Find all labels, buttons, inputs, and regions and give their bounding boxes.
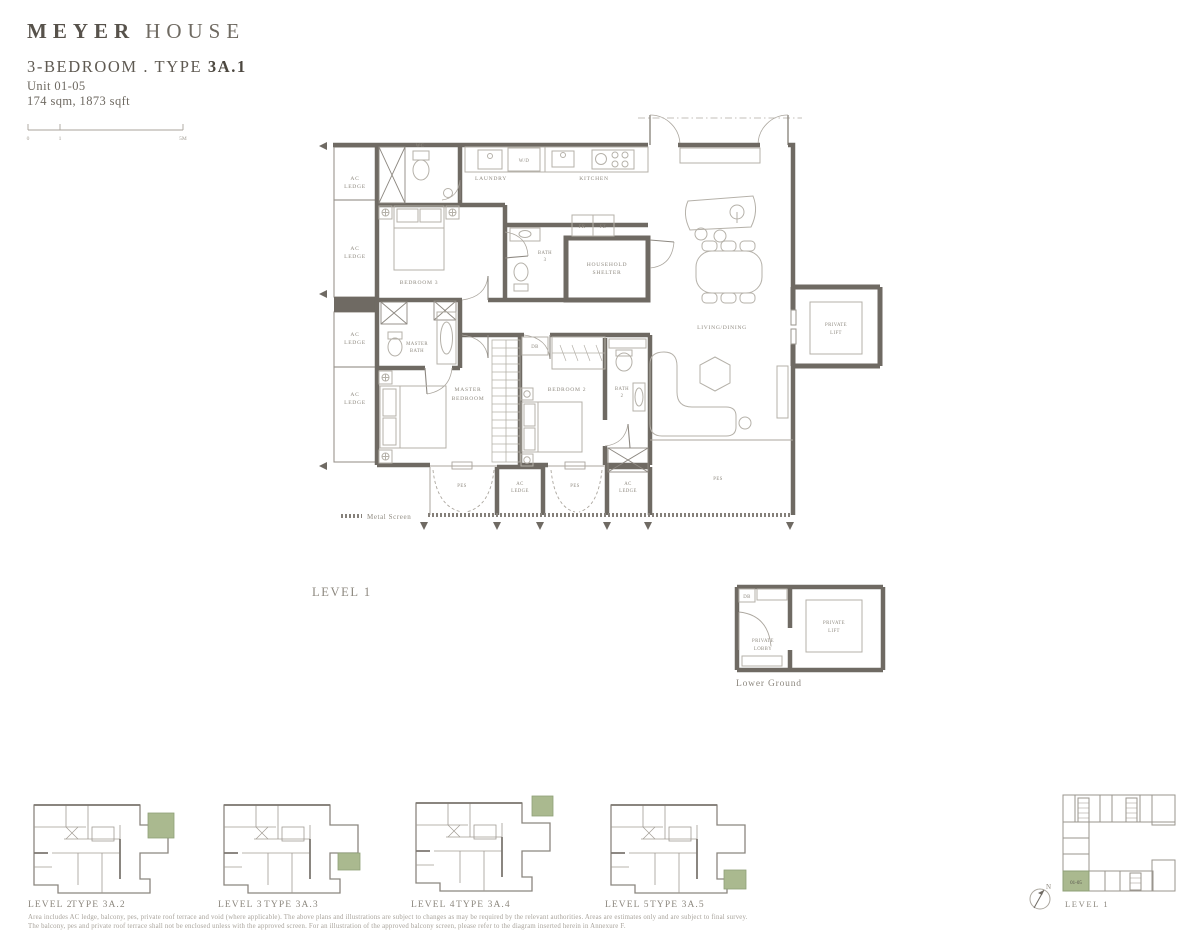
lower-ground-caption: Lower Ground xyxy=(736,679,802,689)
thumbnail-3a5 xyxy=(611,805,746,893)
svg-text:3: 3 xyxy=(544,258,547,263)
svg-text:BEDROOM 2: BEDROOM 2 xyxy=(548,387,586,393)
brand-logo: MEYERHOUSE xyxy=(27,19,245,44)
key-plan-unit-label: 01-05 xyxy=(1070,881,1082,886)
svg-text:AC: AC xyxy=(516,482,523,487)
pes-zone xyxy=(428,440,793,515)
north-label: N xyxy=(1046,883,1051,891)
highlight-unit-3a5 xyxy=(724,870,746,889)
svg-text:AC: AC xyxy=(350,332,359,338)
key-plan xyxy=(1063,795,1175,891)
thumb-3a4-type: TYPE 3A.4 xyxy=(456,900,511,910)
main-plan-level-label: LEVEL 1 xyxy=(312,585,372,600)
metal-screen-label: Metal Screen xyxy=(367,513,411,521)
svg-text:LEDGE: LEDGE xyxy=(344,254,366,260)
floorplan-page: MEYERHOUSE 3-BEDROOM . TYPE 3A.1 Unit 01… xyxy=(0,0,1200,942)
brand-primary: MEYER xyxy=(27,19,135,43)
svg-text:PRIVATE: PRIVATE xyxy=(825,323,847,328)
svg-text:PES: PES xyxy=(457,484,466,489)
svg-text:LEDGE: LEDGE xyxy=(344,400,366,406)
svg-text:LEDGE: LEDGE xyxy=(344,340,366,346)
svg-text:SHELTER: SHELTER xyxy=(593,270,622,276)
master-bedroom-furniture xyxy=(379,371,446,463)
bath2-fixtures xyxy=(609,339,646,411)
walls xyxy=(333,145,880,515)
disclaimer-line-1: Area includes AC ledge, balcony, pes, pr… xyxy=(28,913,1173,922)
room-labels: AC LEDGE AC LEDGE AC LEDGE AC LEDGE WC L… xyxy=(344,144,862,494)
scale-tick-1: 1 xyxy=(59,136,62,142)
svg-text:LEDGE: LEDGE xyxy=(619,489,637,494)
disclaimer: Area includes AC ledge, balcony, pes, pr… xyxy=(28,913,1173,931)
lower-ground-walls xyxy=(737,587,883,670)
unit-type-code: 3A.1 xyxy=(208,57,247,76)
thumbnail-3a4 xyxy=(416,796,553,891)
unit-type-prefix: 3-BEDROOM . TYPE xyxy=(27,57,208,76)
svg-text:BATH: BATH xyxy=(410,349,424,354)
svg-text:LAUNDRY: LAUNDRY xyxy=(475,176,507,182)
kitchen-laundry-fixtures xyxy=(413,147,648,198)
key-plan-level-label: LEVEL 1 xyxy=(1065,899,1109,909)
svg-text:LOBBY: LOBBY xyxy=(754,647,772,652)
lower-ground-labels: DB PRIVATE LOBBY PRIVATE LIFT xyxy=(743,595,845,652)
service-shafts xyxy=(379,147,648,472)
svg-text:FR: FR xyxy=(579,225,586,230)
svg-text:WC: WC xyxy=(416,144,425,149)
svg-text:BEDROOM 3: BEDROOM 3 xyxy=(400,280,438,286)
bedroom3-furniture xyxy=(379,206,459,270)
thumb-3a2-level: LEVEL 2 xyxy=(28,900,73,910)
svg-text:BATH: BATH xyxy=(538,251,552,256)
svg-text:BATH: BATH xyxy=(615,387,629,392)
thumbnail-strip: 01-05 N xyxy=(20,785,1185,915)
svg-text:FZ: FZ xyxy=(600,225,606,230)
unit-type-title: 3-BEDROOM . TYPE 3A.1 xyxy=(27,57,247,77)
scale-bar: 0 1 5M xyxy=(25,118,195,146)
svg-text:W/D: W/D xyxy=(519,159,530,164)
metal-screen-legend: Metal Screen xyxy=(341,513,411,521)
svg-text:PRIVATE: PRIVATE xyxy=(752,639,774,644)
svg-text:LEDGE: LEDGE xyxy=(344,184,366,190)
thumb-3a3-type: TYPE 3A.3 xyxy=(264,900,319,910)
highlight-unit-3a2 xyxy=(148,813,174,838)
svg-text:DB: DB xyxy=(531,345,538,350)
scale-tick-5m: 5M xyxy=(179,136,187,142)
svg-text:KITCHEN: KITCHEN xyxy=(579,176,608,182)
unit-range: Unit 01-05 xyxy=(27,79,86,94)
svg-text:MASTER: MASTER xyxy=(406,342,428,347)
thumb-3a2-type: TYPE 3A.2 xyxy=(71,900,126,910)
lower-ground-plan: DB PRIVATE LOBBY PRIVATE LIFT xyxy=(730,580,890,680)
ac-ledges xyxy=(334,147,377,462)
highlight-unit-3a3 xyxy=(338,853,360,870)
thumbnail-3a2 xyxy=(34,805,174,893)
svg-text:LIFT: LIFT xyxy=(828,629,840,634)
doors xyxy=(425,180,796,448)
svg-text:HOUSEHOLD: HOUSEHOLD xyxy=(587,262,627,268)
svg-text:AC: AC xyxy=(350,392,359,398)
main-floor-plan: Metal Screen AC LEDGE AC LEDGE AC LEDGE … xyxy=(315,108,900,540)
svg-text:LEDGE: LEDGE xyxy=(511,489,529,494)
bedroom2-furniture xyxy=(521,337,605,466)
walkin-wardrobe xyxy=(492,340,520,462)
svg-text:PES: PES xyxy=(570,484,579,489)
entrance-doors xyxy=(638,115,802,163)
thumb-3a5-type: TYPE 3A.5 xyxy=(650,900,705,910)
scale-bar-lines xyxy=(28,124,183,130)
svg-text:2: 2 xyxy=(621,394,624,399)
scale-tick-0: 0 xyxy=(27,136,30,142)
svg-text:AC: AC xyxy=(350,176,359,182)
svg-text:DB: DB xyxy=(743,595,750,600)
north-arrow: N xyxy=(1030,883,1051,909)
svg-text:AC: AC xyxy=(624,482,631,487)
unit-area: 174 sqm, 1873 sqft xyxy=(27,94,130,109)
thumb-3a5-level: LEVEL 5 xyxy=(605,900,650,910)
svg-text:PRIVATE: PRIVATE xyxy=(823,621,845,626)
svg-text:LIFT: LIFT xyxy=(830,331,842,336)
svg-text:AC: AC xyxy=(350,246,359,252)
svg-text:MASTER: MASTER xyxy=(455,387,482,393)
disclaimer-line-2: The balcony, pes and private roof terrac… xyxy=(28,922,1173,931)
thumbnail-3a3 xyxy=(224,805,360,893)
thumb-3a3-level: LEVEL 3 xyxy=(218,900,263,910)
highlight-unit-3a4 xyxy=(532,796,553,816)
thumb-3a4-level: LEVEL 4 xyxy=(411,900,456,910)
living-dining-furniture xyxy=(650,196,788,436)
lower-ground-fixtures xyxy=(739,589,862,666)
svg-text:PES: PES xyxy=(713,477,722,482)
brand-secondary: HOUSE xyxy=(145,19,245,43)
svg-text:BEDROOM: BEDROOM xyxy=(452,396,485,402)
svg-text:LIVING/DINING: LIVING/DINING xyxy=(697,325,747,331)
